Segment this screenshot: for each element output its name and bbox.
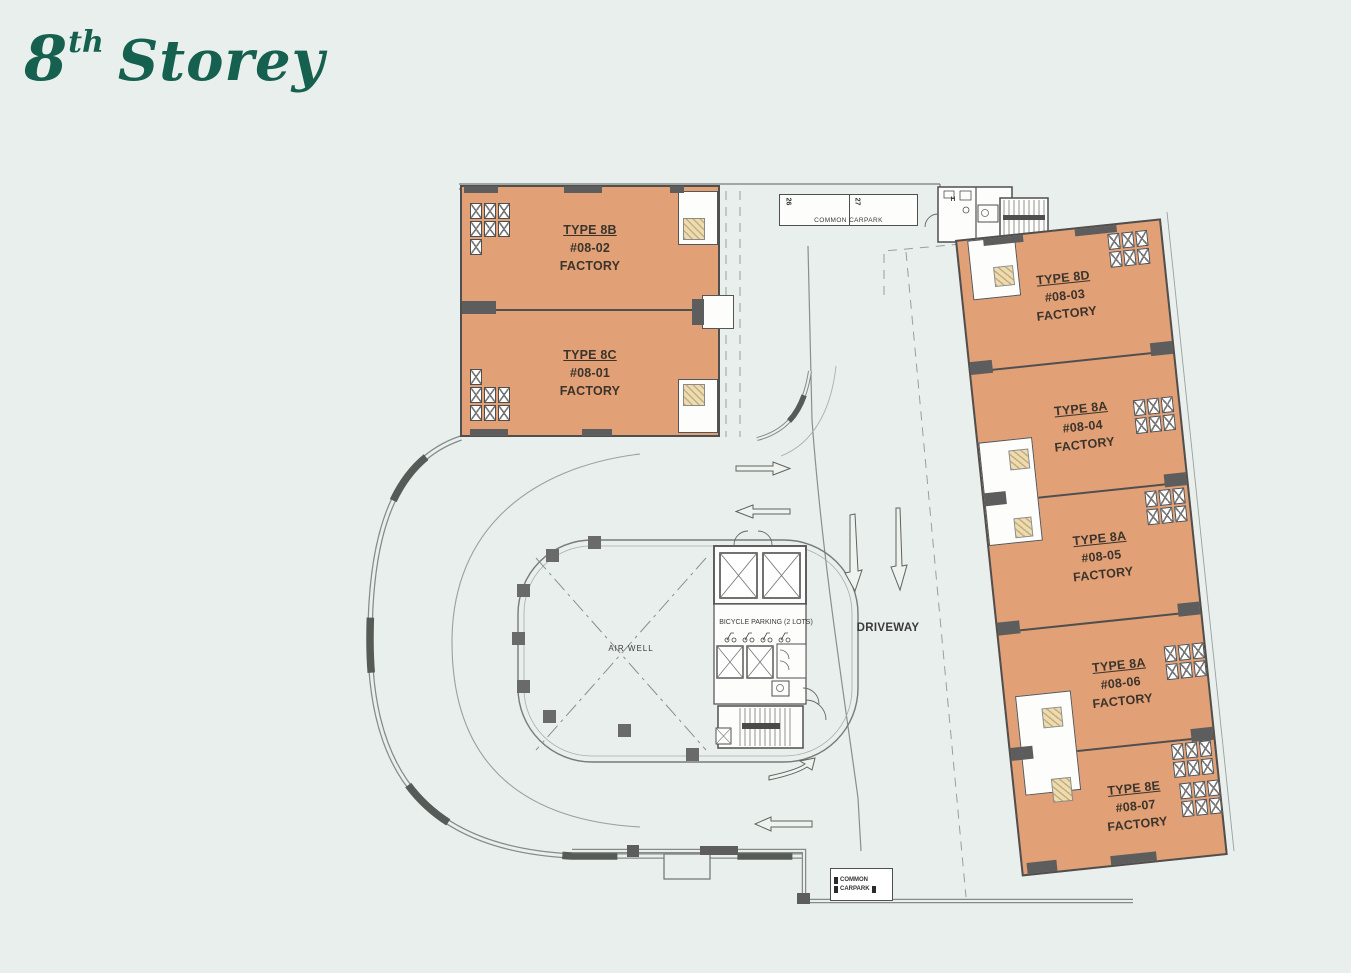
- unit-use: FACTORY: [560, 382, 620, 400]
- lobby-pod: [978, 437, 1043, 546]
- unit-number: #08-02: [560, 239, 620, 257]
- air-well-label: AIR WELL: [596, 644, 666, 653]
- unit-type-label: TYPE 8B: [560, 221, 620, 239]
- carpark-bottom-line2: CARPARK: [840, 886, 870, 892]
- motorcycle-lot-icon: [834, 877, 838, 884]
- toilet-pod: [678, 191, 718, 245]
- common-carpark-bottom: COMMON CARPARK: [830, 868, 893, 901]
- louvre-vent: [470, 369, 482, 385]
- core-lifts-stairs: [714, 531, 826, 748]
- louvre-vent-grid: [470, 203, 510, 237]
- carpark-bottom-line1: COMMON: [840, 877, 868, 883]
- storey-number: 8: [24, 22, 67, 95]
- left-factory-block: TYPE 8B #08-02 FACTORY TYPE 8C #08-01 FA…: [460, 185, 720, 437]
- arrow-left-icon: [755, 817, 812, 831]
- louvre-vent-grid: [1171, 740, 1214, 778]
- louvre-vent: [470, 239, 482, 255]
- louvre-vent-grid: [1179, 779, 1222, 817]
- floor-plan-canvas: 8thStorey: [0, 0, 1351, 973]
- arrow-down-icon: [891, 508, 907, 590]
- motorcycle-lot-icon: [834, 886, 838, 893]
- louvre-vent-grid: [470, 387, 510, 421]
- driveway-label: DRIVEWAY: [856, 622, 920, 634]
- page-title: 8thStorey: [24, 22, 325, 95]
- louvre-vent-grid: [1133, 396, 1176, 434]
- storey-word: Storey: [118, 28, 325, 94]
- motorcycle-lot-icon: [872, 886, 876, 893]
- storey-ordinal: th: [68, 25, 104, 60]
- carpark-lot-number: 26: [784, 198, 791, 206]
- common-carpark-top: 26 27 COMMON CARPARK: [779, 194, 918, 226]
- lobby-pod: [967, 236, 1021, 301]
- louvre-vent-grid: [1144, 487, 1187, 525]
- unit-number: #08-01: [560, 364, 620, 382]
- common-carpark-label: COMMON CARPARK: [780, 217, 917, 224]
- carpark-lot-number: 27: [853, 198, 860, 206]
- arrow-down-icon: [845, 514, 862, 591]
- unit-type-label: TYPE 8C: [560, 346, 620, 364]
- unit-use: FACTORY: [560, 257, 620, 275]
- service-pod: [702, 295, 734, 329]
- lobby-pod: [1015, 690, 1081, 795]
- toilet-pod: [678, 379, 718, 433]
- louvre-vent-grid: [1107, 230, 1150, 268]
- arrow-left-icon: [736, 505, 790, 518]
- bicycle-parking-label: BICYCLE PARKING (2 LOTS): [710, 619, 822, 626]
- stair-room-label: H: [947, 196, 959, 203]
- louvre-vent-grid: [1164, 642, 1207, 680]
- driveway-dashed-lines: [726, 191, 966, 897]
- arrow-right-icon: [736, 462, 790, 475]
- staircase-icon: [716, 706, 803, 748]
